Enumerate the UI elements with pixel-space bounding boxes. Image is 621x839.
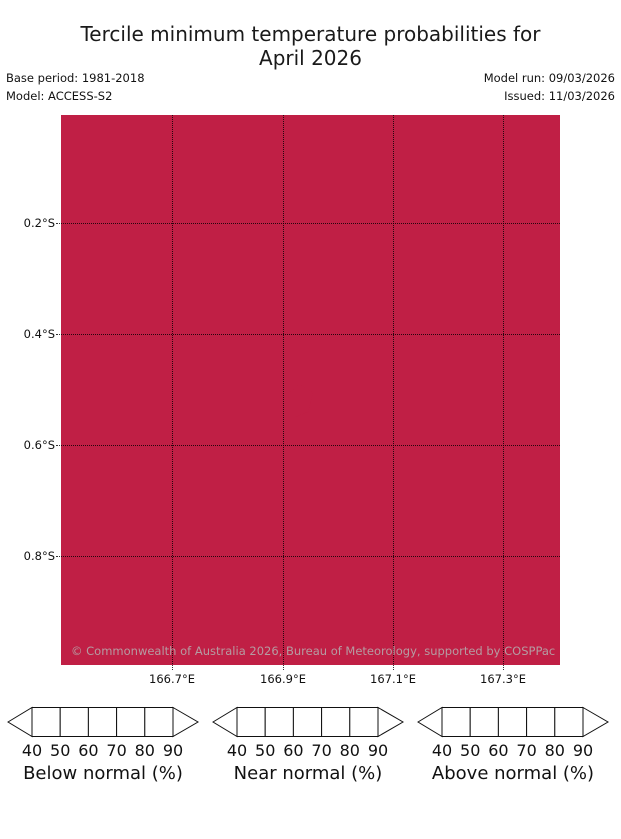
model-run-text: Model run: 09/03/2026 <box>484 70 615 88</box>
colorbar-tick: 70 <box>106 741 126 760</box>
meta-right: Model run: 09/03/2026 Issued: 11/03/2026 <box>484 70 615 105</box>
colorbar-tick: 50 <box>255 741 275 760</box>
colorbar-tick: 40 <box>432 741 452 760</box>
colorbar-tick: 40 <box>227 741 247 760</box>
colorbar-segment <box>322 708 350 737</box>
colorbar-tick: 60 <box>78 741 98 760</box>
base-period-text: Base period: 1981-2018 <box>6 70 145 88</box>
colorbar-tick: 60 <box>488 741 508 760</box>
colorbar-tick: 60 <box>283 741 303 760</box>
colorbar-tick-row: 40 50 60 70 80 90 <box>212 741 404 761</box>
colorbar-above-label: Above normal (%) <box>417 763 609 784</box>
colorbar-tick-row: 40 50 60 70 80 90 <box>417 741 609 761</box>
colorbar-tick: 80 <box>545 741 565 760</box>
colorbar-above-gradient <box>417 706 610 739</box>
colorbar-left-arrow <box>8 708 32 737</box>
figure-canvas: Tercile minimum temperature probabilitie… <box>0 0 621 839</box>
meta-left: Base period: 1981-2018 Model: ACCESS-S2 <box>6 70 145 105</box>
colorbar-tick: 70 <box>311 741 331 760</box>
x-tick-label: 167.1°E <box>353 671 433 687</box>
colorbar-tick: 50 <box>50 741 70 760</box>
issued-text: Issued: 11/03/2026 <box>484 88 615 106</box>
y-tick-label: 0.4°S <box>0 326 55 342</box>
attribution-text: © Commonwealth of Australia 2026, Bureau… <box>71 644 560 658</box>
island-coastline-polygon <box>286 384 313 417</box>
chart-title: Tercile minimum temperature probabilitie… <box>0 22 621 70</box>
colorbar-left-arrow <box>418 708 442 737</box>
y-tick-label: 0.2°S <box>0 215 55 231</box>
colorbar-below-normal: 40 50 60 70 80 90 Below normal (%) <box>7 706 199 792</box>
y-tick-label: 0.8°S <box>0 548 55 564</box>
colorbar-near-normal: 40 50 60 70 80 90 Near normal (%) <box>212 706 404 792</box>
colorbar-segment <box>60 708 88 737</box>
colorbar-segment <box>527 708 555 737</box>
colorbar-near-label: Near normal (%) <box>212 763 404 784</box>
colorbar-near-gradient <box>212 706 405 739</box>
island-outline <box>282 378 318 424</box>
chart-title-line2: April 2026 <box>0 46 621 70</box>
colorbar-right-arrow <box>378 708 403 737</box>
grid-line-vertical <box>503 115 504 670</box>
colorbar-above-normal: 40 50 60 70 80 90 Above normal (%) <box>417 706 609 792</box>
colorbar-tick: 90 <box>163 741 183 760</box>
x-tick-label: 167.3°E <box>463 671 543 687</box>
grid-line-vertical <box>393 115 394 670</box>
colorbar-segment <box>237 708 265 737</box>
x-tick-label: 166.7°E <box>132 671 212 687</box>
colorbar-tick: 90 <box>573 741 593 760</box>
colorbar-tick-row: 40 50 60 70 80 90 <box>7 741 199 761</box>
colorbar-segment <box>145 708 173 737</box>
colorbar-tick: 40 <box>22 741 42 760</box>
y-tick-label: 0.6°S <box>0 437 55 453</box>
colorbar-tick: 50 <box>460 741 480 760</box>
colorbar-tick: 80 <box>340 741 360 760</box>
colorbar-segment <box>32 708 60 737</box>
colorbar-segment <box>265 708 293 737</box>
colorbar-segment <box>498 708 526 737</box>
grid-line-horizontal <box>56 223 560 224</box>
colorbar-segment <box>555 708 583 737</box>
colorbar-segment <box>350 708 378 737</box>
chart-title-line1: Tercile minimum temperature probabilitie… <box>0 22 621 46</box>
grid-line-horizontal <box>56 445 560 446</box>
colorbar-tick: 80 <box>135 741 155 760</box>
colorbar-below-gradient <box>7 706 200 739</box>
colorbar-below-label: Below normal (%) <box>7 763 199 784</box>
colorbar-right-arrow <box>173 708 198 737</box>
x-tick-label: 166.9°E <box>243 671 323 687</box>
colorbar-left-arrow <box>213 708 237 737</box>
colorbar-segment <box>293 708 321 737</box>
grid-line-vertical <box>172 115 173 670</box>
colorbar-right-arrow <box>583 708 608 737</box>
colorbar-segment <box>470 708 498 737</box>
model-text: Model: ACCESS-S2 <box>6 88 145 106</box>
colorbar-tick: 90 <box>368 741 388 760</box>
colorbar-segment <box>442 708 470 737</box>
grid-line-horizontal <box>56 334 560 335</box>
colorbar-segment <box>88 708 116 737</box>
colorbar-tick: 70 <box>516 741 536 760</box>
grid-line-horizontal <box>56 556 560 557</box>
colorbar-segment <box>117 708 145 737</box>
